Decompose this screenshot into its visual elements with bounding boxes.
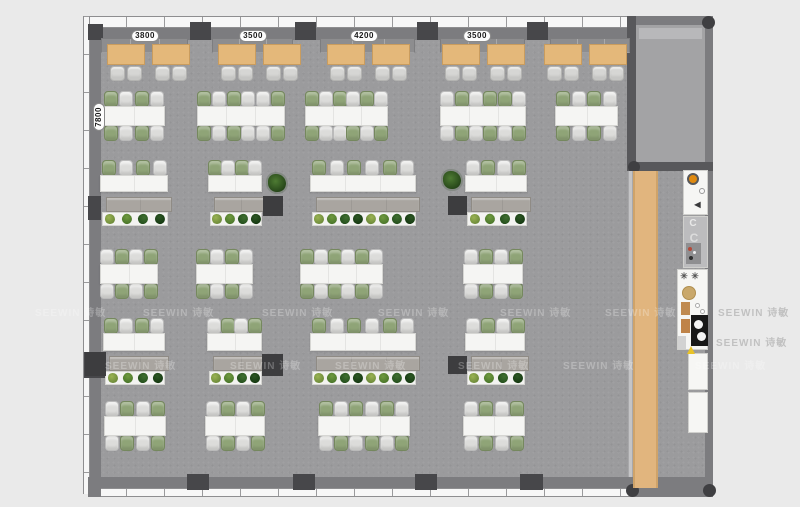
machine-dial: [694, 320, 703, 329]
office-chair: [464, 401, 478, 417]
cup: [700, 309, 705, 314]
office-chair: [347, 160, 361, 176]
office-chair: [236, 435, 250, 451]
wall-column: [295, 22, 316, 40]
office-chair: [330, 318, 344, 334]
office-chair: [512, 160, 526, 176]
office-chair: [383, 160, 397, 176]
lounge-chair: [547, 66, 562, 81]
office-chair: [239, 283, 253, 299]
lounge-chair: [564, 66, 579, 81]
office-chair: [197, 91, 211, 107]
tray: [678, 336, 686, 349]
jar: [681, 302, 690, 315]
office-chair: [271, 125, 285, 141]
office-chair: [341, 249, 355, 265]
meeting-room-floor: [636, 25, 705, 162]
office-chair: [129, 283, 143, 299]
lounge-chair: [445, 66, 460, 81]
office-chair: [400, 160, 414, 176]
lounge-chair: [462, 66, 477, 81]
desk: [463, 264, 523, 284]
office-chair: [334, 435, 348, 451]
office-chair: [251, 435, 265, 451]
watermark: SEEWIN 诗敏: [718, 304, 789, 319]
office-chair: [104, 125, 118, 141]
office-chair: [221, 160, 235, 176]
office-chair: [349, 401, 363, 417]
office-chair: [395, 435, 409, 451]
plant: [108, 373, 118, 383]
coffee-table: [263, 44, 301, 65]
office-chair: [119, 318, 133, 334]
office-chair: [440, 91, 454, 107]
desk: [207, 333, 262, 351]
office-chair: [466, 318, 480, 334]
office-chair: [256, 125, 270, 141]
office-chair: [135, 91, 149, 107]
office-chair: [212, 125, 226, 141]
office-chair: [466, 160, 480, 176]
office-chair: [380, 435, 394, 451]
office-chair: [481, 318, 495, 334]
kitchen-counter: [688, 392, 708, 433]
wall-column: [527, 22, 548, 40]
wall-column: [190, 22, 211, 40]
office-chair: [603, 125, 617, 141]
office-chair: [248, 318, 262, 334]
coffee-table: [589, 44, 627, 65]
office-chair: [328, 283, 342, 299]
office-chair: [234, 318, 248, 334]
plant: [469, 373, 479, 383]
office-chair: [464, 249, 478, 265]
office-chair: [248, 160, 262, 176]
storage-cabinet: [316, 197, 420, 212]
office-chair: [221, 435, 235, 451]
kitchen-counter: [688, 353, 708, 390]
lounge-chair: [221, 66, 236, 81]
office-chair: [105, 435, 119, 451]
storage-cabinet: [213, 356, 266, 371]
office-chair: [104, 91, 118, 107]
office-chair: [236, 401, 250, 417]
office-chair: [346, 91, 360, 107]
dimension-label-left: 7800: [93, 103, 105, 131]
desk: [208, 175, 262, 192]
office-chair: [144, 283, 158, 299]
office-chair: [469, 125, 483, 141]
lounge-chair: [127, 66, 142, 81]
office-chair: [509, 249, 523, 265]
office-chair: [314, 283, 328, 299]
office-chair: [455, 125, 469, 141]
hob-dot: [688, 247, 692, 251]
office-chair: [136, 160, 150, 176]
office-chair: [225, 283, 239, 299]
storage-cabinet: [471, 356, 529, 371]
storage-box: [85, 352, 106, 376]
office-chair: [235, 160, 249, 176]
plant: [314, 373, 324, 383]
office-chair: [119, 125, 133, 141]
office-chair: [380, 401, 394, 417]
office-chair: [221, 318, 235, 334]
storage-cabinet: [106, 197, 172, 212]
office-chair: [556, 91, 570, 107]
office-chair: [314, 249, 328, 265]
jar: [681, 319, 690, 333]
office-chair: [494, 283, 508, 299]
office-chair: [369, 249, 383, 265]
office-chair: [572, 91, 586, 107]
office-chair: [256, 91, 270, 107]
office-chair: [349, 435, 363, 451]
office-chair: [135, 318, 149, 334]
storage-box: [262, 354, 283, 376]
office-chair: [150, 318, 164, 334]
office-chair: [497, 160, 511, 176]
storage-box: [448, 196, 467, 215]
office-chair: [495, 401, 509, 417]
office-chair: [105, 401, 119, 417]
office-chair: [319, 401, 333, 417]
office-chair: [271, 91, 285, 107]
office-chair: [196, 249, 210, 265]
wall-column: [417, 22, 438, 40]
office-chair: [479, 249, 493, 265]
office-chair: [305, 125, 319, 141]
office-chair: [479, 435, 493, 451]
office-chair: [464, 435, 478, 451]
office-chair: [102, 160, 116, 176]
lounge-chair: [238, 66, 253, 81]
office-chair: [341, 283, 355, 299]
office-chair: [572, 125, 586, 141]
office-chair: [400, 318, 414, 334]
coffee-table: [327, 44, 365, 65]
plant: [314, 214, 324, 224]
desk: [103, 333, 165, 351]
plant: [211, 373, 221, 383]
office-chair: [369, 283, 383, 299]
office-chair: [300, 283, 314, 299]
office-chair: [355, 283, 369, 299]
speaker-icon: ◀: [692, 200, 703, 210]
office-chair: [312, 160, 326, 176]
coffee-table: [372, 44, 410, 65]
coffee-table: [218, 44, 256, 65]
office-chair: [496, 318, 510, 334]
warning-icon: [687, 346, 695, 354]
office-chair: [120, 435, 134, 451]
office-chair: [212, 91, 226, 107]
coffee-table: [152, 44, 190, 65]
desk: [465, 175, 527, 192]
office-chair: [153, 160, 167, 176]
lounge-chair: [592, 66, 607, 81]
office-chair: [464, 283, 478, 299]
office-chair: [129, 249, 143, 265]
plant: [212, 214, 222, 224]
office-chair: [120, 401, 134, 417]
office-chair: [469, 91, 483, 107]
office-chair: [319, 125, 333, 141]
fan-icon: ✳: [690, 271, 700, 281]
round-column: [703, 484, 716, 497]
dimension-label-top-1: 3800: [131, 30, 159, 42]
office-chair: [104, 318, 118, 334]
office-chair: [119, 160, 133, 176]
lounge-chair: [507, 66, 522, 81]
dial: [699, 188, 705, 194]
office-chair: [330, 160, 344, 176]
office-chair: [365, 318, 379, 334]
office-chair: [510, 435, 524, 451]
office-chair: [333, 91, 347, 107]
fan-icon: ✳: [679, 271, 689, 281]
office-chair: [300, 249, 314, 265]
office-chair: [210, 249, 224, 265]
office-chair: [100, 249, 114, 265]
office-chair: [374, 125, 388, 141]
lounge-chair: [155, 66, 170, 81]
office-chair: [241, 125, 255, 141]
wall-column: [187, 474, 209, 490]
office-chair: [346, 125, 360, 141]
desk: [463, 416, 525, 436]
office-chair: [479, 401, 493, 417]
round-column: [702, 16, 715, 29]
office-chair: [603, 91, 617, 107]
floor-plan: ◀CC✳✳SEEWIN 诗敏SEEWIN 诗敏SEEWIN 诗敏SEEWIN 诗…: [0, 0, 800, 507]
coffee-table: [544, 44, 582, 65]
office-chair: [481, 160, 495, 176]
desk: [100, 175, 168, 192]
window-band-left: [83, 16, 90, 494]
office-chair: [241, 91, 255, 107]
corner-bottom-left: [88, 477, 101, 497]
coffee-table: [442, 44, 480, 65]
plant: [470, 214, 480, 224]
office-chair: [119, 91, 133, 107]
faucet-handle: C: [687, 218, 699, 229]
office-chair: [221, 401, 235, 417]
wood-walkway: [633, 171, 658, 488]
window-band-bottom: [88, 488, 630, 497]
coffee-table: [107, 44, 145, 65]
dimension-label-top-3: 4200: [350, 30, 378, 42]
office-chair: [312, 318, 326, 334]
office-chair: [197, 125, 211, 141]
lounge-chair: [375, 66, 390, 81]
office-chair: [100, 283, 114, 299]
office-chair: [365, 160, 379, 176]
knob-orange: [687, 173, 699, 185]
desk: [205, 416, 265, 436]
desk: [440, 106, 526, 126]
office-chair: [334, 401, 348, 417]
office-chair: [328, 249, 342, 265]
lounge-chair: [266, 66, 281, 81]
storage-box: [448, 356, 467, 374]
desk: [555, 106, 618, 126]
desk: [310, 175, 416, 192]
office-chair: [455, 91, 469, 107]
desk: [196, 264, 253, 284]
bottom-wall-right: [630, 488, 710, 497]
office-chair: [365, 435, 379, 451]
lounge-chair: [172, 66, 187, 81]
office-chair: [206, 401, 220, 417]
office-chair: [512, 125, 526, 141]
office-chair: [512, 91, 526, 107]
wall-column: [293, 474, 315, 490]
desk: [104, 416, 166, 436]
office-chair: [196, 283, 210, 299]
office-chair: [319, 91, 333, 107]
office-chair: [360, 125, 374, 141]
potted-plant: [443, 171, 461, 189]
storage-cabinet: [214, 197, 266, 212]
wall-column: [88, 196, 101, 220]
potted-plant: [268, 174, 286, 192]
office-chair: [319, 435, 333, 451]
office-chair: [498, 125, 512, 141]
office-chair: [151, 401, 165, 417]
office-chair: [511, 318, 525, 334]
office-chair: [305, 91, 319, 107]
office-chair: [510, 401, 524, 417]
machine-dial: [697, 332, 706, 341]
office-chair: [509, 283, 523, 299]
office-chair: [208, 160, 222, 176]
office-chair: [115, 249, 129, 265]
storage-box: [263, 196, 283, 216]
desk: [300, 264, 383, 284]
office-chair: [136, 401, 150, 417]
office-chair: [360, 91, 374, 107]
cup: [695, 303, 700, 308]
office-chair: [144, 249, 158, 265]
storage-cabinet: [471, 197, 531, 212]
office-chair: [374, 91, 388, 107]
office-chair: [225, 249, 239, 265]
lounge-chair: [392, 66, 407, 81]
desk: [465, 333, 525, 351]
office-chair: [227, 91, 241, 107]
office-chair: [206, 435, 220, 451]
office-chair: [365, 401, 379, 417]
office-chair: [151, 435, 165, 451]
desk: [100, 264, 158, 284]
desk: [305, 106, 388, 126]
office-chair: [251, 401, 265, 417]
office-chair: [210, 283, 224, 299]
lounge-chair: [283, 66, 298, 81]
office-chair: [587, 125, 601, 141]
office-chair: [347, 318, 361, 334]
office-chair: [383, 318, 397, 334]
hob-dot: [693, 251, 696, 254]
storage-cabinet: [109, 356, 169, 371]
lounge-chair: [330, 66, 345, 81]
office-chair: [483, 91, 497, 107]
office-chair: [498, 91, 512, 107]
office-chair: [150, 91, 164, 107]
office-chair: [494, 249, 508, 265]
office-chair: [556, 125, 570, 141]
office-chair: [239, 249, 253, 265]
wall-column: [520, 474, 543, 490]
office-chair: [440, 125, 454, 141]
office-chair: [136, 435, 150, 451]
wall-column: [415, 474, 437, 490]
office-chair: [355, 249, 369, 265]
lounge-chair: [110, 66, 125, 81]
office-chair: [479, 283, 493, 299]
desk: [103, 106, 165, 126]
office-chair: [483, 125, 497, 141]
office-chair: [495, 435, 509, 451]
office-chair: [587, 91, 601, 107]
meeting-room-credenza: [638, 27, 703, 40]
dimension-label-top-4: 3500: [463, 30, 491, 42]
desk: [197, 106, 285, 126]
hob-dot: [689, 256, 693, 260]
lounge-chair: [347, 66, 362, 81]
desk: [310, 333, 416, 351]
office-chair: [207, 318, 221, 334]
lounge-chair: [609, 66, 624, 81]
office-chair: [150, 125, 164, 141]
coffee-table: [487, 44, 525, 65]
office-chair: [115, 283, 129, 299]
lounge-chair: [490, 66, 505, 81]
storage-cabinet: [316, 356, 420, 371]
office-chair: [135, 125, 149, 141]
watermark: SEEWIN 诗敏: [716, 334, 787, 349]
office-chair: [333, 125, 347, 141]
plate-gold: [682, 286, 696, 300]
office-chair: [227, 125, 241, 141]
office-chair: [395, 401, 409, 417]
dimension-label-top-2: 3500: [239, 30, 267, 42]
desk: [318, 416, 410, 436]
plant: [105, 214, 115, 224]
